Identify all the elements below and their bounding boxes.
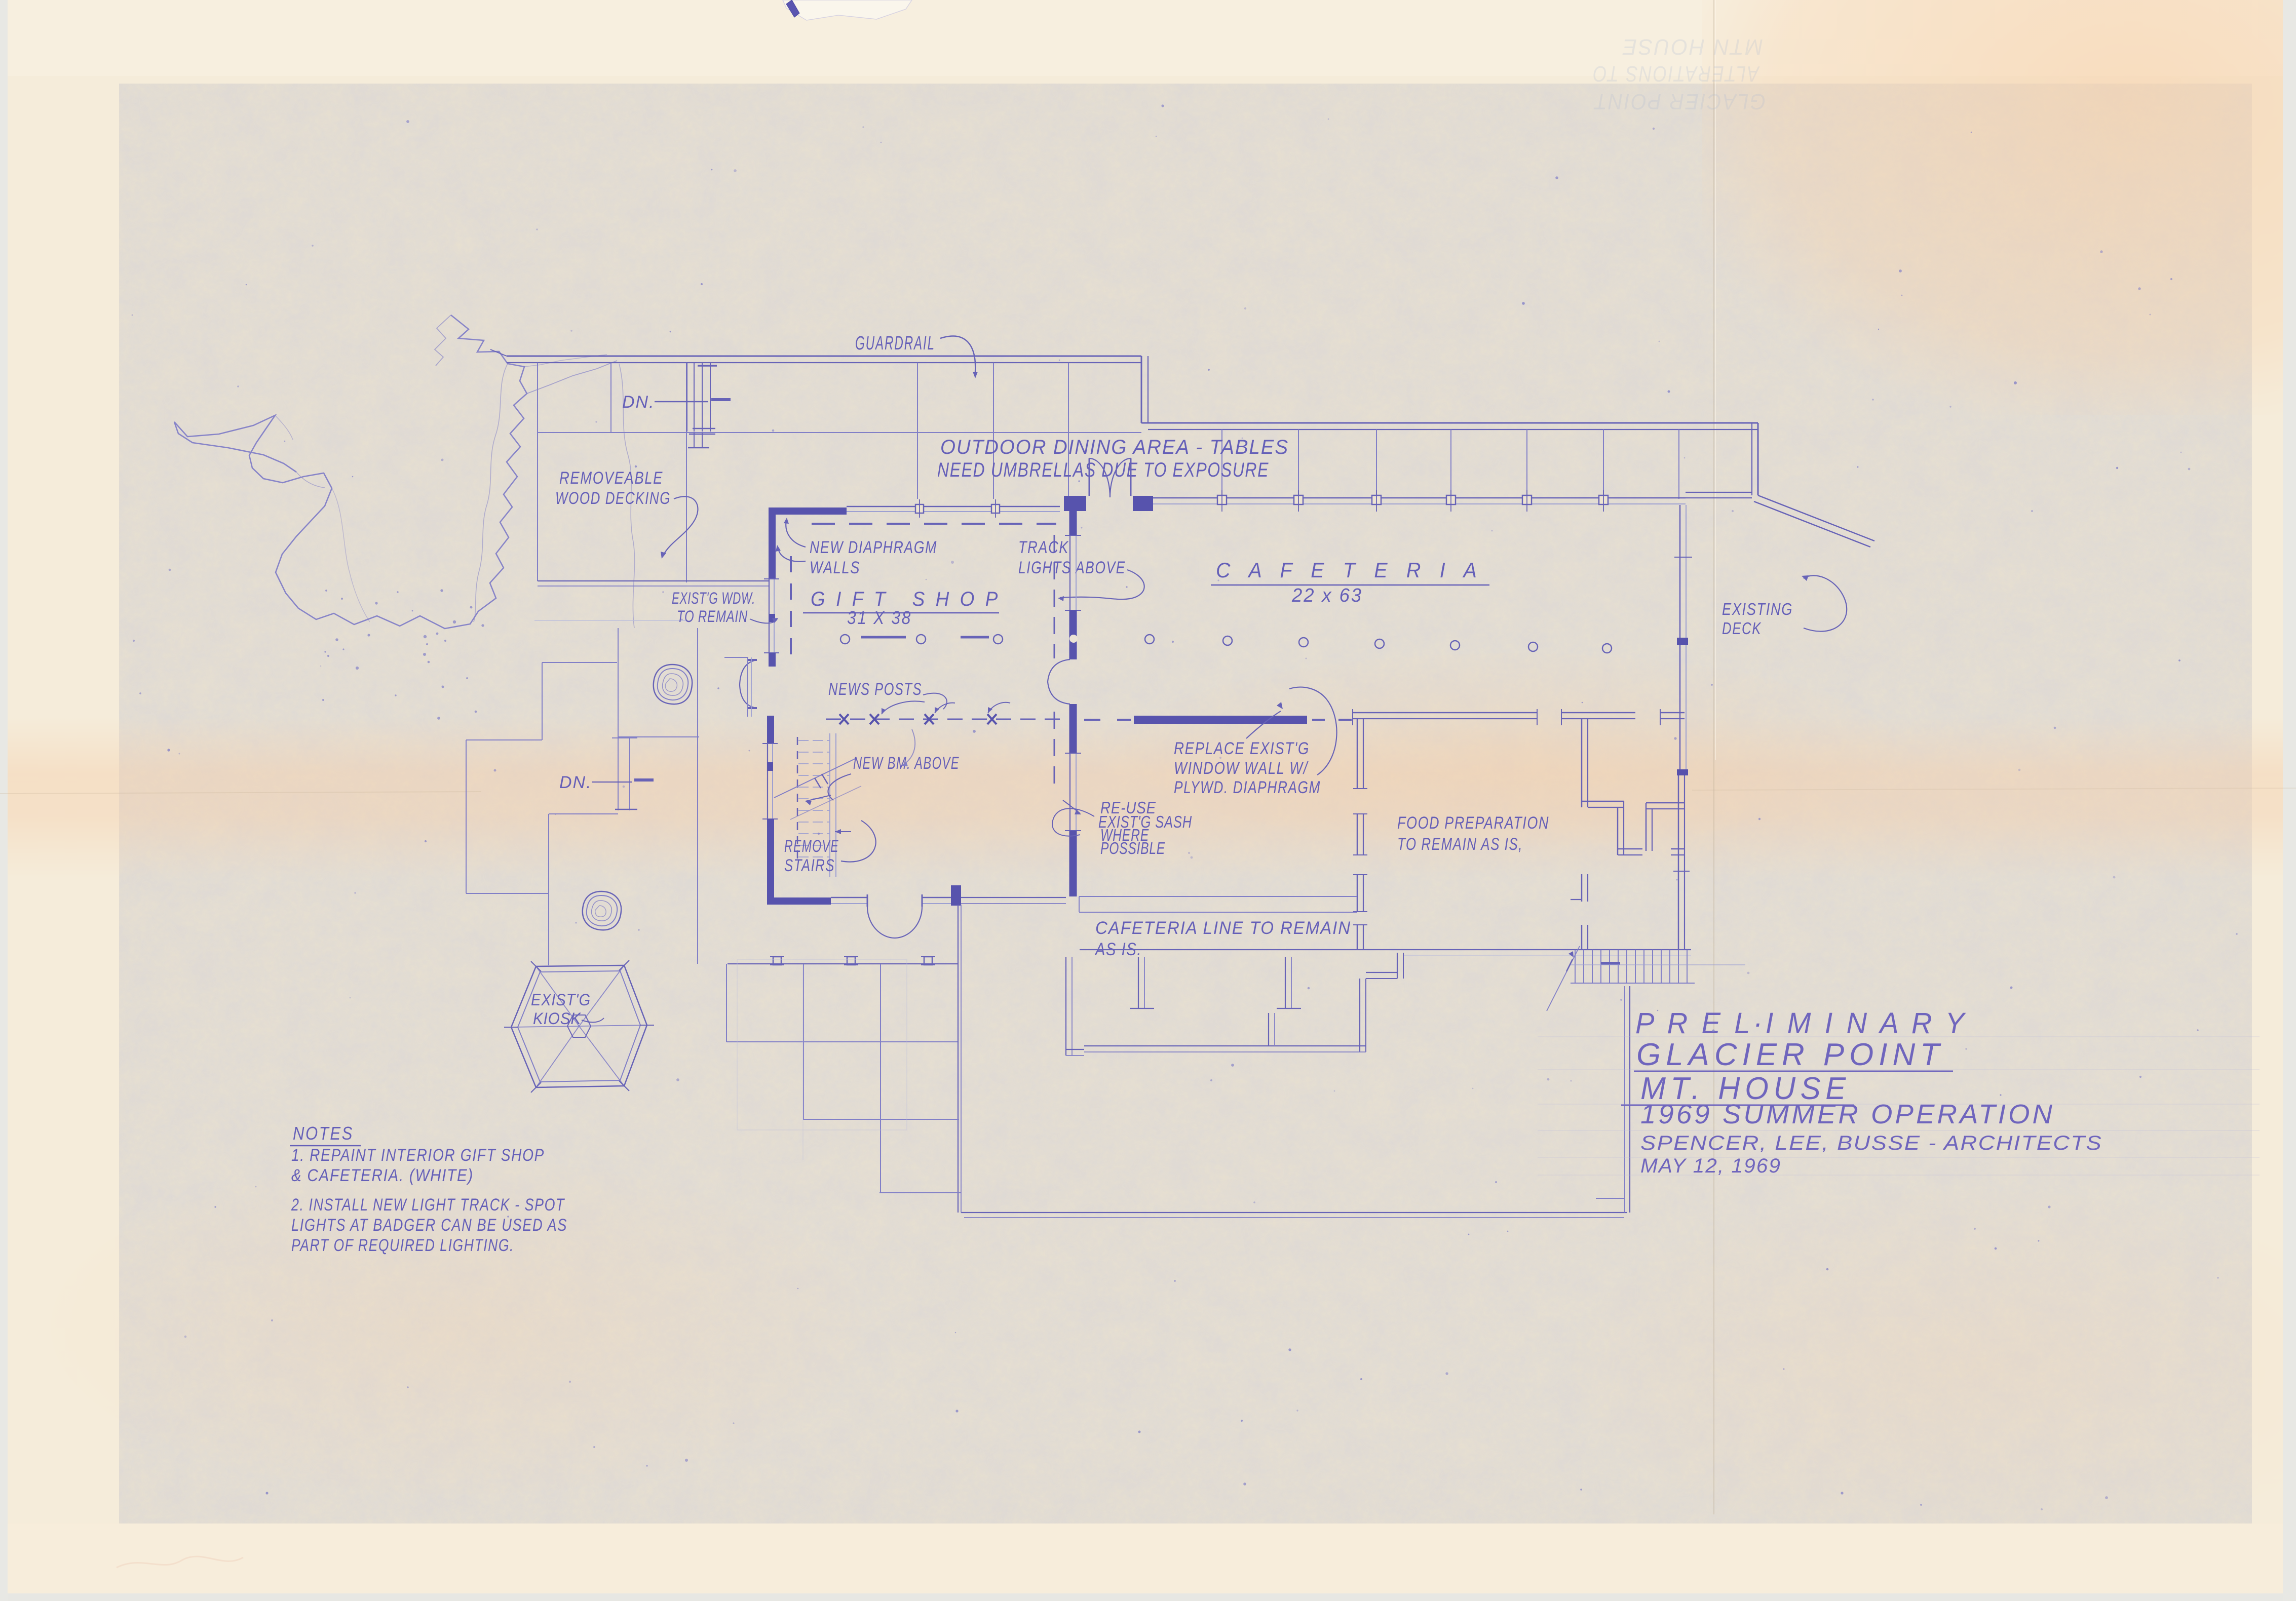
svg-text:ALTERATIONS TO: ALTERATIONS TO: [1592, 61, 1760, 86]
svg-text:& CAFETERIA. (WHITE): & CAFETERIA. (WHITE): [291, 1166, 474, 1185]
svg-text:DN.: DN.: [559, 773, 592, 792]
svg-text:KIOSK: KIOSK: [533, 1009, 582, 1028]
svg-text:SPENCER, LEE, BUSSE - ARCHITEC: SPENCER, LEE, BUSSE - ARCHITECTS: [1640, 1132, 2102, 1154]
svg-text:STAIRS: STAIRS: [784, 856, 835, 875]
svg-text:1. REPAINT INTERIOR GIFT SHOP: 1. REPAINT INTERIOR GIFT SHOP: [291, 1146, 545, 1165]
svg-text:CAFETERIA LINE TO REMAIN: CAFETERIA LINE TO REMAIN: [1095, 918, 1351, 938]
svg-text:MTN HOUSE: MTN HOUSE: [1621, 34, 1763, 59]
svg-text:TO REMAIN: TO REMAIN: [677, 607, 748, 626]
svg-text:OUTDOOR DINING AREA - TABLES: OUTDOOR DINING AREA - TABLES: [940, 436, 1289, 458]
svg-text:PART OF REQUIRED LIGHTING.: PART OF REQUIRED LIGHTING.: [291, 1236, 514, 1255]
svg-text:GUARDRAIL: GUARDRAIL: [855, 333, 935, 354]
svg-text:DECK: DECK: [1722, 619, 1762, 638]
svg-text:WOOD DECKING: WOOD DECKING: [555, 489, 671, 508]
svg-text:MAY 12, 1969: MAY 12, 1969: [1640, 1155, 1781, 1177]
svg-text:LIGHTS ABOVE: LIGHTS ABOVE: [1018, 558, 1126, 577]
svg-text:EXIST'G: EXIST'G: [531, 991, 591, 1009]
svg-text:EXIST'G WDW.: EXIST'G WDW.: [672, 589, 755, 607]
svg-text:GLACIER POINT: GLACIER POINT: [1593, 89, 1766, 114]
svg-text:NEED UMBRELLAS DUE TO EXPOSURE: NEED UMBRELLAS DUE TO EXPOSURE: [937, 459, 1269, 481]
svg-text:31 X 38: 31 X 38: [847, 607, 912, 628]
svg-text:WINDOW WALL W/: WINDOW WALL W/: [1174, 759, 1309, 778]
svg-text:EXISTING: EXISTING: [1722, 600, 1793, 618]
svg-text:22 x 63: 22 x 63: [1291, 585, 1363, 606]
svg-text:GLACIER POINT: GLACIER POINT: [1636, 1037, 1944, 1072]
svg-text:C A F E T E R I A: C A F E T E R I A: [1216, 558, 1483, 582]
svg-text:NEW DIAPHRAGM: NEW DIAPHRAGM: [810, 538, 937, 557]
svg-text:DN.: DN.: [622, 393, 655, 412]
svg-text:NOTES: NOTES: [293, 1123, 354, 1144]
svg-text:REMOVEABLE: REMOVEABLE: [559, 468, 663, 488]
svg-text:PLYWD. DIAPHRAGM: PLYWD. DIAPHRAGM: [1174, 778, 1321, 797]
svg-text:WALLS: WALLS: [810, 558, 860, 577]
svg-text:POSSIBLE: POSSIBLE: [1100, 839, 1165, 857]
svg-text:P R E L·I M I N A R Y: P R E L·I M I N A R Y: [1635, 1007, 1967, 1040]
svg-text:REMOVE: REMOVE: [784, 837, 839, 856]
svg-text:TO REMAIN AS IS,: TO REMAIN AS IS,: [1397, 835, 1523, 854]
svg-text:NEWS POSTS: NEWS POSTS: [828, 680, 922, 699]
svg-text:TRACK: TRACK: [1018, 538, 1069, 557]
svg-text:2. INSTALL NEW LIGHT TRACK - S: 2. INSTALL NEW LIGHT TRACK - SPOT: [291, 1195, 565, 1215]
svg-text:1969 SUMMER OPERATION: 1969 SUMMER OPERATION: [1640, 1099, 2055, 1129]
svg-text:LIGHTS AT BADGER CAN BE USED A: LIGHTS AT BADGER CAN BE USED AS: [291, 1216, 567, 1235]
svg-text:REPLACE EXIST'G: REPLACE EXIST'G: [1174, 739, 1310, 758]
svg-text:FOOD PREPARATION: FOOD PREPARATION: [1397, 813, 1549, 833]
